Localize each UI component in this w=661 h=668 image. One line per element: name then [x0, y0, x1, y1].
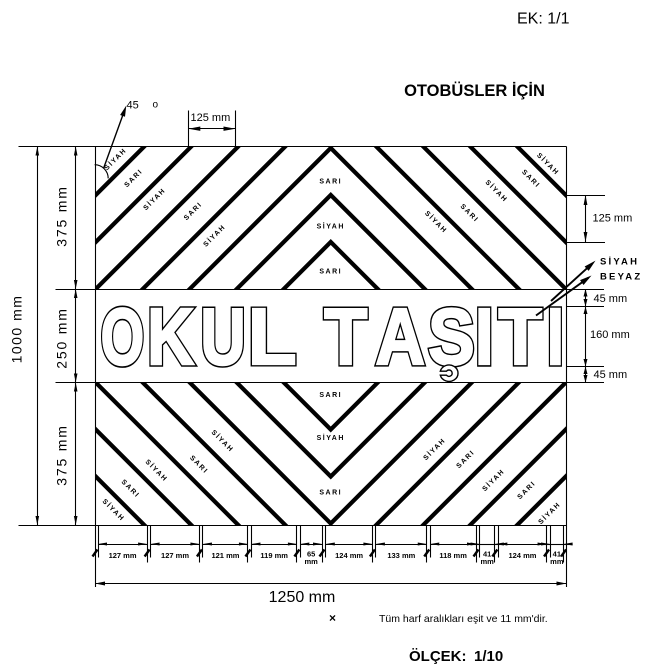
svg-text:127 mm: 127 mm	[161, 551, 189, 560]
svg-text:SARI: SARI	[188, 455, 209, 476]
svg-text:45: 45	[127, 100, 139, 112]
svg-text:45 mm: 45 mm	[594, 293, 628, 305]
svg-text:O: O	[101, 292, 144, 381]
svg-text:SİYAH: SİYAH	[535, 151, 561, 177]
svg-text:SARI: SARI	[455, 449, 476, 470]
svg-text:SARI: SARI	[319, 179, 342, 186]
svg-text:SARI: SARI	[123, 168, 144, 189]
svg-text:1000 mm: 1000 mm	[9, 295, 25, 364]
svg-text:124 mm: 124 mm	[335, 551, 363, 560]
svg-text:124 mm: 124 mm	[508, 551, 536, 560]
svg-text:EK: 1/1: EK: 1/1	[517, 11, 570, 28]
svg-text:125 mm: 125 mm	[191, 112, 231, 124]
svg-text:SARI: SARI	[120, 479, 141, 500]
svg-text:375 mm: 375 mm	[54, 185, 70, 246]
svg-text:SİYAH: SİYAH	[210, 428, 236, 454]
svg-text:mm: mm	[480, 557, 494, 566]
svg-text:BEYAZ: BEYAZ	[600, 272, 642, 283]
svg-text:K: K	[147, 293, 194, 382]
svg-text:SARI: SARI	[520, 169, 541, 190]
svg-text:121 mm: 121 mm	[211, 551, 239, 560]
svg-text:SİYAH: SİYAH	[317, 223, 345, 231]
svg-text:×: ×	[329, 611, 336, 625]
svg-text:SİYAH: SİYAH	[317, 434, 345, 442]
svg-text:250 mm: 250 mm	[54, 307, 70, 368]
svg-text:133 mm: 133 mm	[387, 551, 415, 560]
svg-text:Tüm harf aralıkları eşit ve 11: Tüm harf aralıkları eşit ve 11 mm'dir.	[379, 613, 548, 625]
svg-text:T: T	[498, 293, 542, 381]
svg-text:U: U	[200, 293, 245, 382]
svg-text:127 mm: 127 mm	[109, 551, 137, 560]
svg-text:OTOBÜSLER İÇİN: OTOBÜSLER İÇİN	[404, 81, 545, 100]
svg-text:I: I	[475, 292, 494, 382]
svg-text:o: o	[153, 100, 159, 111]
svg-text:1250 mm: 1250 mm	[269, 589, 336, 606]
svg-text:118 mm: 118 mm	[439, 551, 467, 560]
svg-text:A: A	[376, 292, 425, 381]
svg-text:SİYAH: SİYAH	[481, 467, 507, 493]
svg-text:SİYAH: SİYAH	[600, 257, 639, 268]
svg-text:mm: mm	[550, 557, 564, 566]
svg-text:mm: mm	[304, 557, 318, 566]
svg-text:ÖLÇEK:: ÖLÇEK:	[409, 648, 467, 665]
svg-text:SARI: SARI	[319, 392, 342, 399]
svg-text:SARI: SARI	[516, 480, 537, 501]
svg-text:L: L	[248, 292, 297, 381]
svg-text:SARI: SARI	[319, 269, 342, 276]
svg-text:SARI: SARI	[183, 201, 204, 222]
svg-text:T: T	[324, 292, 367, 381]
svg-text:375 mm: 375 mm	[54, 424, 70, 485]
svg-text:119 mm: 119 mm	[260, 551, 288, 560]
svg-text:45 mm: 45 mm	[594, 369, 628, 381]
svg-text:SARI: SARI	[459, 203, 480, 224]
svg-text:1/10: 1/10	[474, 648, 503, 665]
svg-text:SARI: SARI	[319, 490, 342, 497]
svg-text:160 mm: 160 mm	[590, 329, 630, 341]
svg-text:125 mm: 125 mm	[593, 213, 633, 225]
